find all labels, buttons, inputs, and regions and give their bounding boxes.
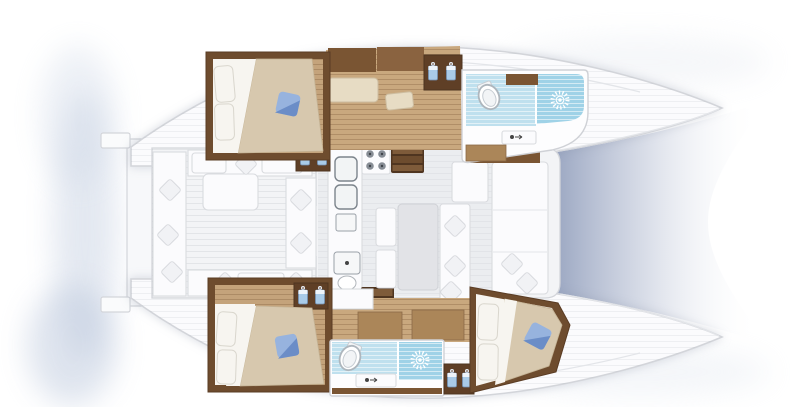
sink-basin-icon — [338, 276, 356, 290]
double-bed — [213, 59, 323, 153]
swim-step — [101, 297, 130, 312]
wardrobe — [424, 55, 462, 90]
bathroom-floorboard — [466, 145, 506, 161]
floor-plan-svg — [0, 0, 800, 407]
counter — [358, 312, 402, 340]
double-bed — [215, 304, 324, 386]
sink-basin-icon — [335, 157, 357, 181]
bathroom-floorboard — [332, 388, 442, 394]
lounge-bench — [328, 78, 378, 102]
wardrobe — [294, 283, 328, 309]
sink-basin-icon — [335, 185, 357, 209]
cockpit-table — [203, 174, 258, 210]
fridge-icon — [336, 214, 356, 231]
pillow — [214, 104, 234, 141]
settee-seat — [376, 250, 396, 288]
pillow — [216, 350, 236, 385]
cabinet — [377, 47, 424, 71]
blue-pillow — [274, 333, 299, 358]
sofa-corner — [452, 162, 488, 202]
pillow — [477, 304, 499, 341]
pillow — [216, 311, 237, 346]
catamaran-floor-plan — [0, 0, 800, 407]
stove-burners-icon — [362, 146, 390, 174]
side-table — [385, 92, 414, 111]
sofa — [492, 162, 548, 294]
cabinet — [328, 48, 376, 72]
cabin-top-aft — [206, 52, 330, 160]
pillow — [213, 65, 235, 103]
settee-seat — [376, 208, 396, 246]
vanity-shelf — [506, 74, 538, 85]
swim-step — [101, 133, 130, 148]
blue-pillow — [275, 91, 301, 117]
pillow — [478, 344, 499, 380]
head-bottom-mid — [330, 340, 444, 396]
dining-table — [398, 204, 438, 290]
cabinet — [331, 289, 373, 309]
counter — [412, 310, 464, 340]
cabin-bottom-aft — [208, 278, 332, 392]
